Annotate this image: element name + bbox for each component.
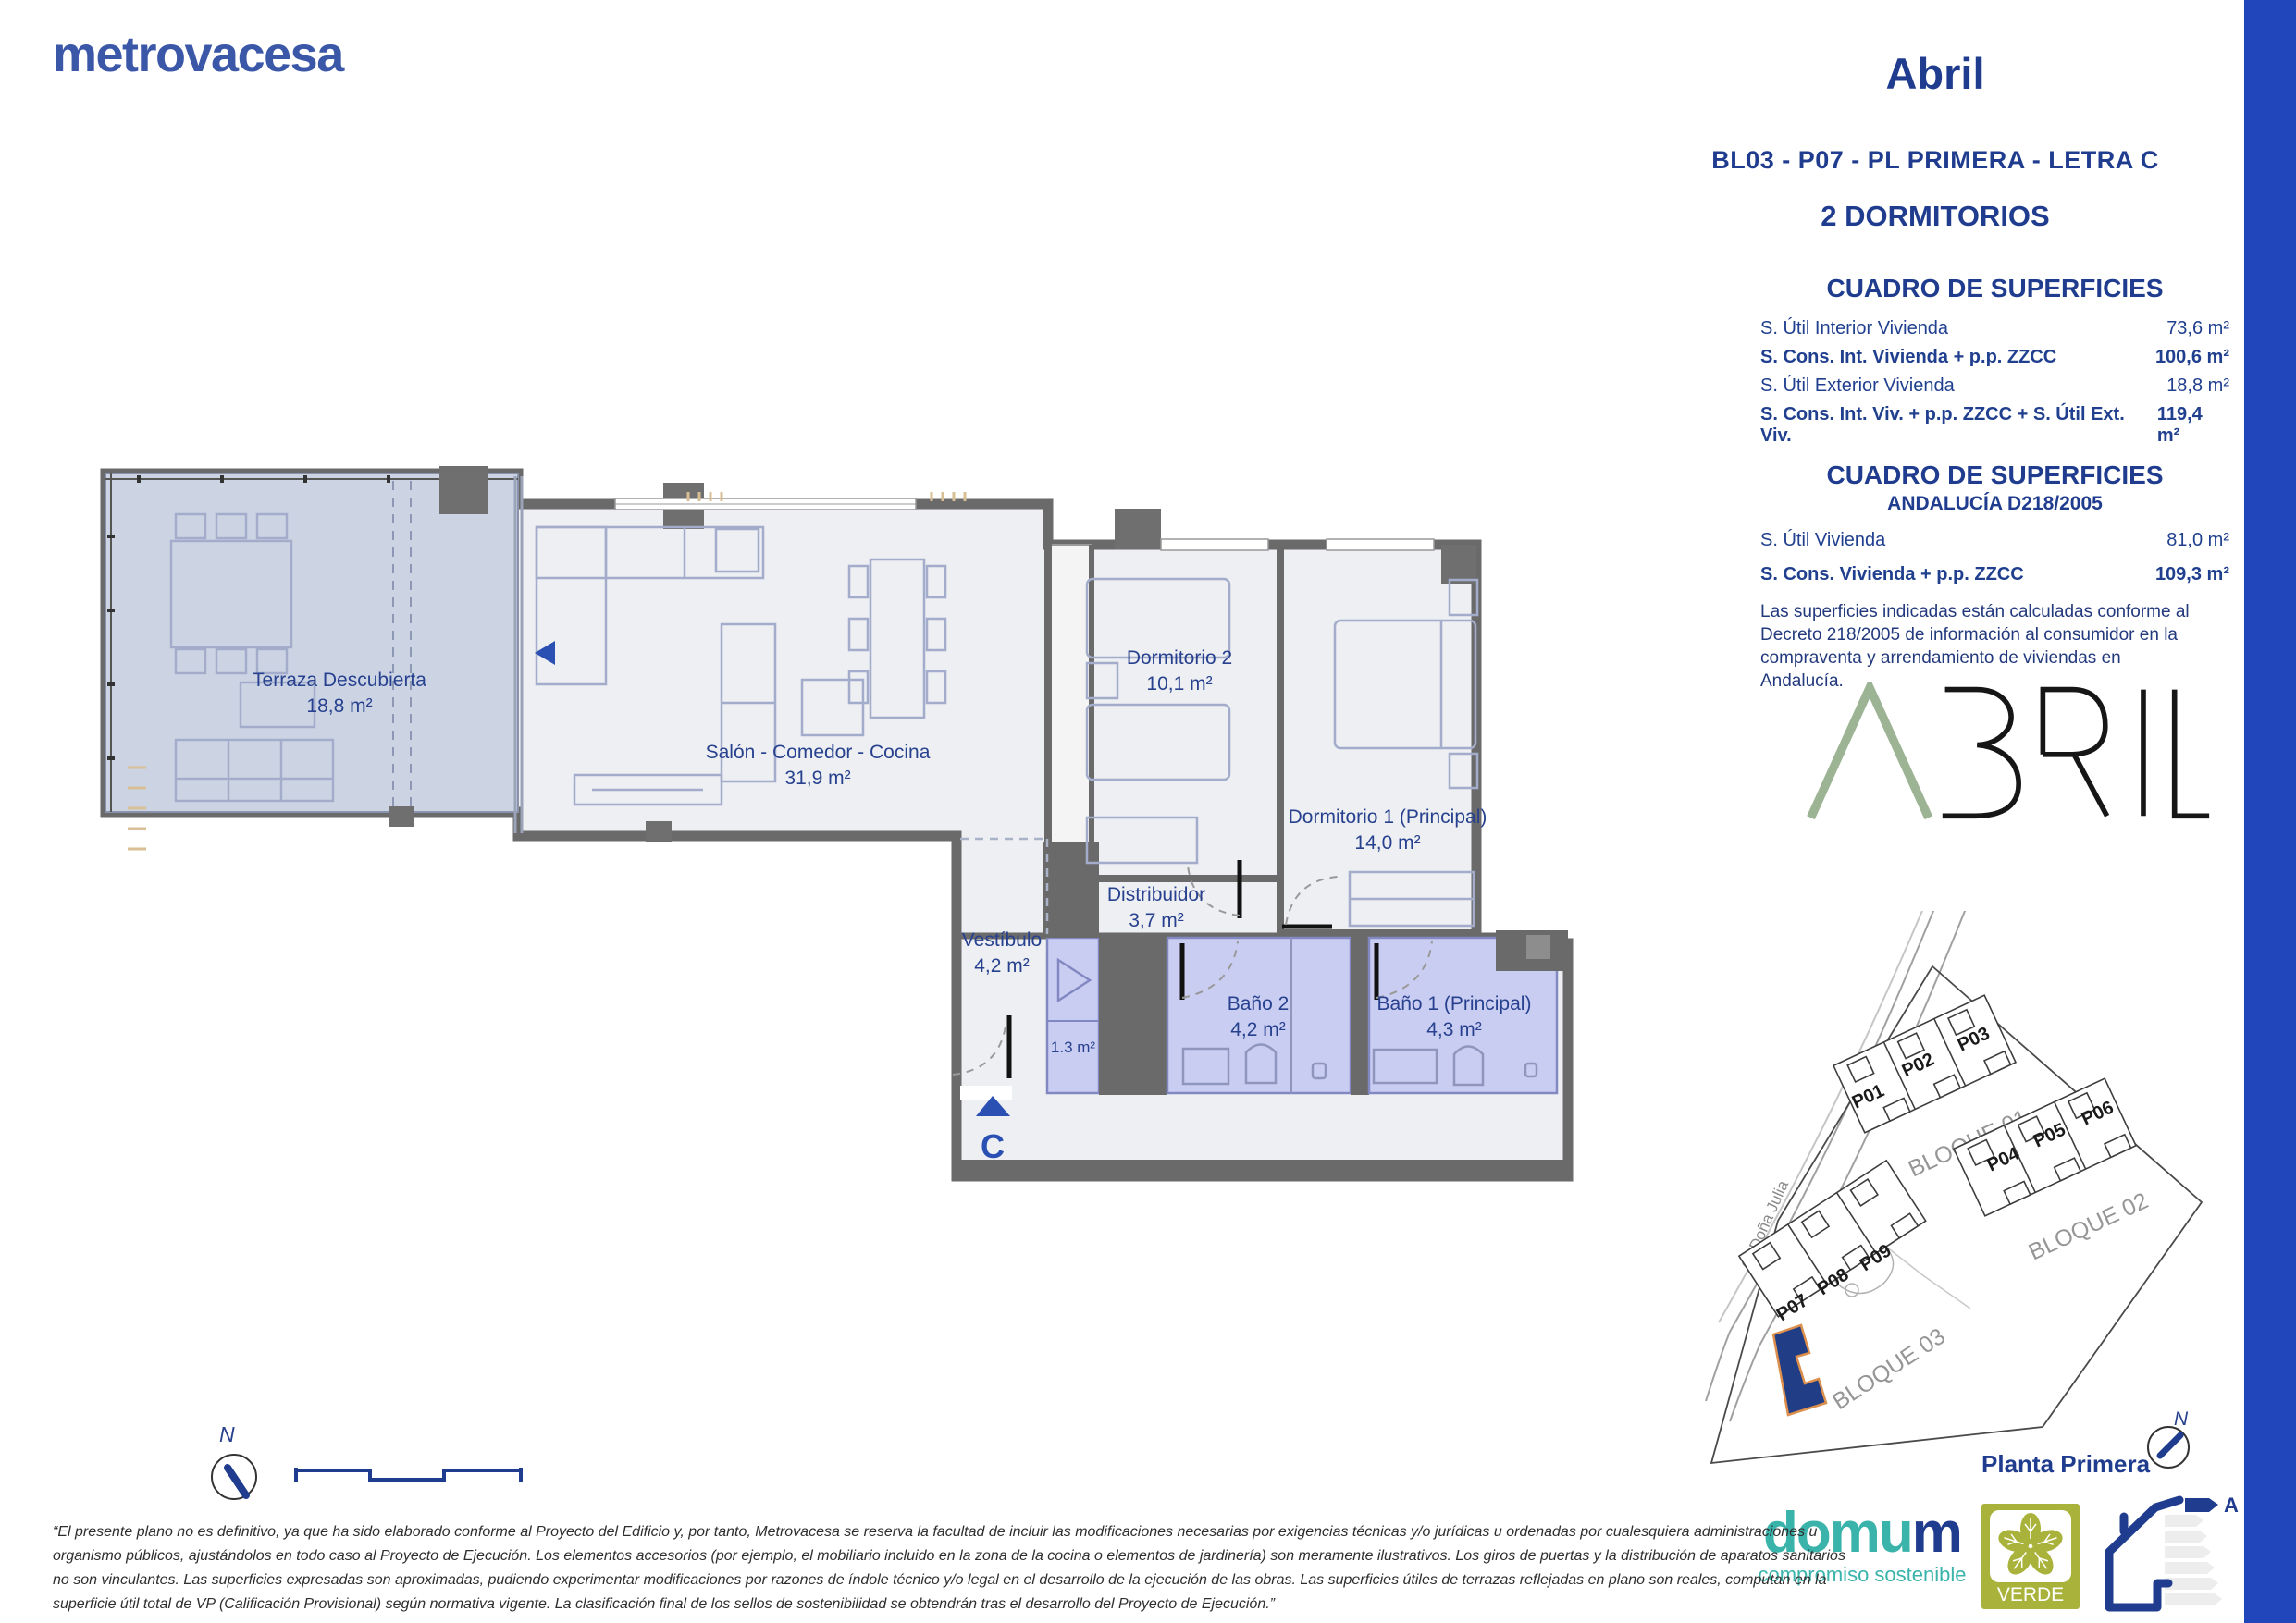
table-row: S. Cons. Int. Viv. + p.p. ZZCC + S. Útil… (1760, 404, 2229, 433)
domum-logo-part2: m (1912, 1501, 1961, 1565)
bathroom2-floor (1167, 938, 1351, 1093)
disclaimer: “El presente plano no es definitivo, ya … (53, 1520, 1845, 1617)
room-area: 4,3 m² (1426, 1019, 1482, 1040)
site-plan: C/ Doña Julia P01 P02 P03 BLOQUE 01 (1693, 911, 2262, 1480)
table-row: S. Útil Vivienda81,0 m² (1760, 530, 2229, 564)
room-label: Salón - Comedor - Cocina (706, 742, 931, 763)
energy-bar-a (2185, 1498, 2218, 1512)
plan-page: metrovacesa Abril BL03 - P07 - PL PRIMER… (0, 0, 2296, 1623)
block-label: BLOQUE 02 (2025, 1187, 2153, 1265)
surfaces-title: CUADRO DE SUPERFICIES (1760, 274, 2229, 303)
wall-block (1099, 936, 1167, 1095)
surfaces-table-andalucia: CUADRO DE SUPERFICIES ANDALUCÍA D218/200… (1760, 461, 2229, 693)
disclaimer-line: superficie útil total de VP (Calificació… (53, 1592, 1845, 1617)
room-area: 1.3 m² (1051, 1039, 1096, 1056)
unit-code: BL03 - P07 - PL PRIMERA - LETRA C (1685, 146, 2185, 175)
energy-bars (2165, 1498, 2222, 1605)
north-label: N (2174, 1408, 2189, 1430)
disclaimer-line: organismo públicos, ajustándolos en todo… (53, 1544, 1845, 1568)
verde-label: VERDE (1997, 1584, 2064, 1605)
room-area: 10,1 m² (1146, 673, 1212, 695)
entrance-letter: C (981, 1127, 1005, 1165)
table-row: S. Útil Exterior Vivienda18,8 m² (1760, 375, 2229, 404)
north-label: N (219, 1422, 235, 1446)
building-block-2: P04 P05 P06 BLOQUE 02 (1954, 1078, 2152, 1265)
room-label: Dormitorio 2 (1127, 647, 1232, 669)
wall-cavity (1048, 545, 1092, 879)
abril-logo-b-icon (1943, 690, 2018, 817)
abril-project-logo (1804, 682, 2211, 821)
north-compass-right: N (2148, 1408, 2189, 1468)
highlighted-unit-p07 (1773, 1325, 1826, 1415)
surfaces-note: Las superficies indicadas están calculad… (1760, 600, 2195, 693)
energy-rating-icon: A (2096, 1494, 2244, 1617)
room-area: 31,9 m² (784, 768, 850, 789)
room-label: Terraza Descubierta (253, 670, 426, 691)
terraza-floor (105, 473, 518, 812)
scale-bar-icon (296, 1468, 521, 1482)
floor-plan: C Terraza Descubierta 18,8 m² Salón - Co… (74, 453, 1610, 1267)
duct (1526, 935, 1550, 959)
wall-block (1351, 936, 1369, 1095)
disclaimer-line: no son vinculantes. Las superficies expr… (53, 1568, 1845, 1592)
table-row: S. Cons. Int. Vivienda + p.p. ZZCC100,6 … (1760, 347, 2229, 375)
room-area: 18,8 m² (306, 695, 372, 717)
surfaces-table: CUADRO DE SUPERFICIES S. Útil Interior V… (1760, 274, 2229, 433)
room-label: Dormitorio 1 (Principal) (1289, 806, 1487, 828)
abril-logo-l-icon (2175, 690, 2209, 817)
room-area: 3,7 m² (1129, 910, 1184, 931)
bedrooms-label: 2 DORMITORIOS (1718, 200, 2153, 233)
surfaces-andalucia-subtitle: ANDALUCÍA D218/2005 (1760, 493, 2229, 515)
table-row: S. Cons. Vivienda + p.p. ZZCC109,3 m² (1760, 564, 2229, 598)
surfaces-andalucia-title: CUADRO DE SUPERFICIES (1760, 461, 2229, 490)
energy-rating-label: A (2224, 1494, 2239, 1517)
wall-block (957, 1160, 1568, 1176)
room-label: Baño 1 (Principal) (1377, 993, 1532, 1014)
room-area: 14,0 m² (1354, 832, 1420, 854)
room-area: 4,2 m² (974, 955, 1030, 977)
block-label: BLOQUE 03 (1828, 1323, 1950, 1415)
room-label: Distribuidor (1107, 884, 1205, 905)
room-label: Vestíbulo (962, 929, 1042, 951)
page-title: Abril (1718, 48, 2153, 99)
wall-block (1043, 842, 1099, 938)
closet-floor (1047, 938, 1099, 1093)
abril-logo-r-icon (2043, 690, 2106, 817)
metrovacesa-logo: metrovacesa (53, 26, 343, 83)
north-compass-left: N (199, 1401, 587, 1507)
floor-label: Planta Primera (1981, 1450, 2150, 1479)
abril-logo-a-icon (1810, 688, 1928, 818)
table-row: S. Útil Interior Vivienda73,6 m² (1760, 318, 2229, 347)
room-area: 4,2 m² (1230, 1019, 1286, 1040)
room-label: Baño 2 (1228, 993, 1290, 1014)
disclaimer-line: “El presente plano no es definitivo, ya … (53, 1520, 1845, 1544)
verde-badge: VERDE (1981, 1504, 2080, 1609)
